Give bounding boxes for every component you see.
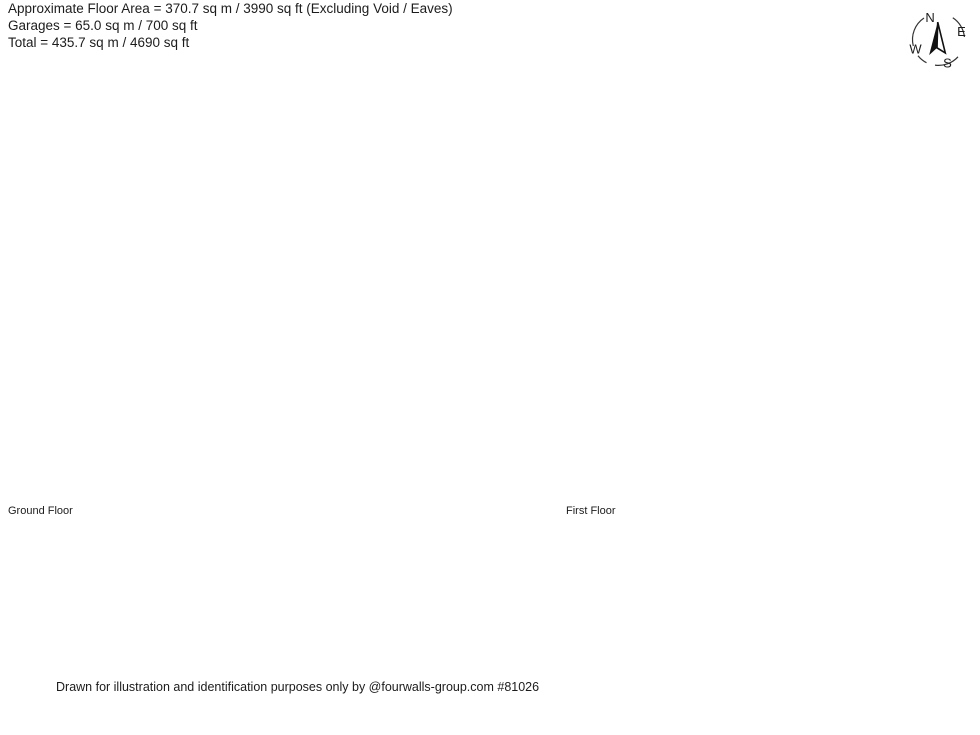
- svg-text:Total = 435.7 sq m / 4690 sq f: Total = 435.7 sq m / 4690 sq ft: [8, 35, 189, 50]
- svg-text:E: E: [957, 24, 966, 39]
- svg-text:Garages = 65.0 sq m / 700 sq f: Garages = 65.0 sq m / 700 sq ft: [8, 18, 198, 33]
- svg-text:Approximate Floor Area = 370.7: Approximate Floor Area = 370.7 sq m / 39…: [8, 1, 453, 16]
- svg-text:S: S: [943, 56, 952, 71]
- svg-text:Ground Floor: Ground Floor: [8, 505, 73, 517]
- svg-text:First Floor: First Floor: [566, 505, 616, 517]
- svg-text:Drawn for illustration and ide: Drawn for illustration and identificatio…: [56, 680, 539, 694]
- svg-text:N: N: [925, 10, 934, 25]
- svg-text:W: W: [909, 42, 922, 57]
